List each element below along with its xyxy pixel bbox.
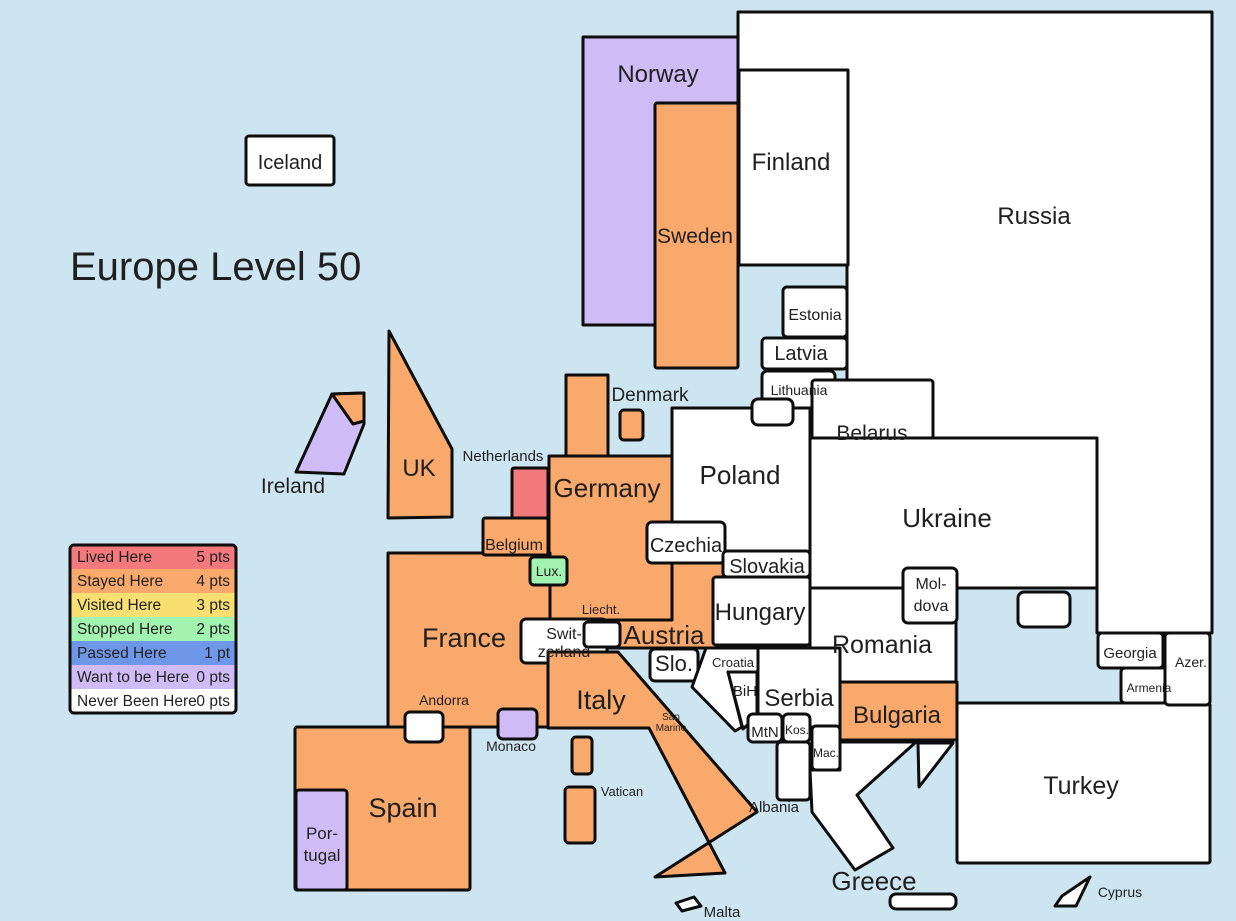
legend-label-lived: Lived Here (77, 549, 152, 566)
label-germany: Germany (554, 473, 661, 503)
country-albania[interactable] (777, 742, 810, 800)
label-albania: Albania (749, 799, 800, 816)
label-armenia: Armenia (1127, 681, 1172, 695)
label-russia: Russia (997, 203, 1071, 230)
label-belgium: Belgium (485, 537, 543, 554)
label-uk: UK (402, 455, 435, 482)
legend-points-passed: 1 pt (204, 645, 231, 662)
legend-points-stopped: 2 pts (196, 621, 230, 638)
country-monaco[interactable] (498, 709, 537, 739)
label-montenegro: MtN (751, 724, 779, 741)
legend-label-never: Never Been Here (77, 693, 197, 710)
label-slovakia: Slovakia (729, 556, 805, 578)
label-andorra: Andorra (419, 692, 469, 708)
label-san-marino-1: San (662, 712, 680, 723)
label-poland: Poland (700, 460, 781, 490)
legend-label-visited: Visited Here (77, 597, 161, 614)
legend-label-stayed: Stayed Here (77, 573, 163, 590)
label-san-marino-2: Marino (656, 723, 687, 734)
label-france: France (422, 623, 506, 653)
label-denmark: Denmark (611, 385, 689, 406)
label-iceland: Iceland (258, 152, 323, 174)
label-czechia: Czechia (650, 535, 723, 557)
region-denmark-isles[interactable] (620, 410, 643, 440)
label-azerbaijan: Azer. (1175, 654, 1207, 670)
label-liechtenstein: Liecht. (582, 602, 620, 617)
legend-points-visited: 3 pts (196, 597, 230, 614)
region-crete[interactable] (890, 894, 956, 909)
label-lithuania: Lithuania (771, 382, 828, 398)
label-austria: Austria (624, 620, 705, 650)
label-bih: BiH (733, 683, 757, 700)
region-corsica[interactable] (572, 737, 592, 774)
label-switzerland-2: zerland (538, 644, 590, 661)
label-malta: Malta (704, 904, 741, 921)
label-norway: Norway (617, 61, 698, 88)
region-crimea[interactable] (1018, 592, 1070, 627)
label-macedonia: Mac. (813, 746, 839, 760)
label-bulgaria: Bulgaria (853, 702, 942, 729)
legend-points-stayed: 4 pts (196, 573, 230, 590)
label-turkey: Turkey (1043, 772, 1119, 800)
label-moldova-2: dova (914, 598, 949, 615)
label-monaco: Monaco (486, 738, 536, 754)
label-kosovo: Kos. (785, 723, 809, 737)
label-vatican: Vatican (601, 784, 643, 799)
region-sardinia[interactable] (565, 787, 595, 843)
label-italy: Italy (576, 685, 626, 715)
label-slovenia: Slo. (655, 651, 693, 676)
europe-level-map: Iceland Norway Sweden Finland Russia Est… (0, 0, 1236, 921)
label-switzerland-1: Swit- (546, 626, 582, 643)
label-latvia: Latvia (774, 343, 828, 365)
legend-label-stopped: Stopped Here (77, 621, 173, 638)
region-kaliningrad[interactable] (752, 399, 793, 425)
label-ukraine: Ukraine (902, 503, 992, 533)
label-hungary: Hungary (715, 599, 806, 626)
legend-label-passed: Passed Here (77, 645, 167, 662)
label-netherlands: Netherlands (463, 448, 544, 465)
label-spain: Spain (368, 793, 437, 823)
label-moldova-1: Mol- (915, 576, 946, 593)
label-finland: Finland (752, 149, 831, 176)
label-georgia: Georgia (1103, 645, 1157, 662)
label-belarus: Belarus (836, 422, 907, 445)
label-greece: Greece (831, 866, 916, 896)
label-luxembourg: Lux. (536, 563, 562, 579)
label-serbia: Serbia (764, 685, 834, 712)
label-sweden: Sweden (657, 225, 733, 248)
legend: Lived Here 5 pts Stayed Here 4 pts Visit… (70, 545, 236, 713)
country-denmark[interactable] (566, 375, 608, 456)
page-title: Europe Level 50 (70, 245, 361, 289)
label-romania: Romania (832, 631, 932, 659)
label-estonia: Estonia (788, 307, 841, 324)
label-cyprus: Cyprus (1098, 884, 1142, 900)
label-portugal-2: tugal (304, 846, 341, 865)
country-andorra[interactable] (405, 712, 443, 742)
label-ireland: Ireland (261, 475, 325, 498)
legend-label-want: Want to be Here (77, 669, 189, 686)
legend-points-never: 0 pts (196, 693, 230, 710)
label-portugal-1: Por- (306, 824, 338, 843)
legend-points-lived: 5 pts (196, 549, 230, 566)
legend-points-want: 0 pts (196, 669, 230, 686)
label-croatia: Croatia (712, 655, 755, 670)
